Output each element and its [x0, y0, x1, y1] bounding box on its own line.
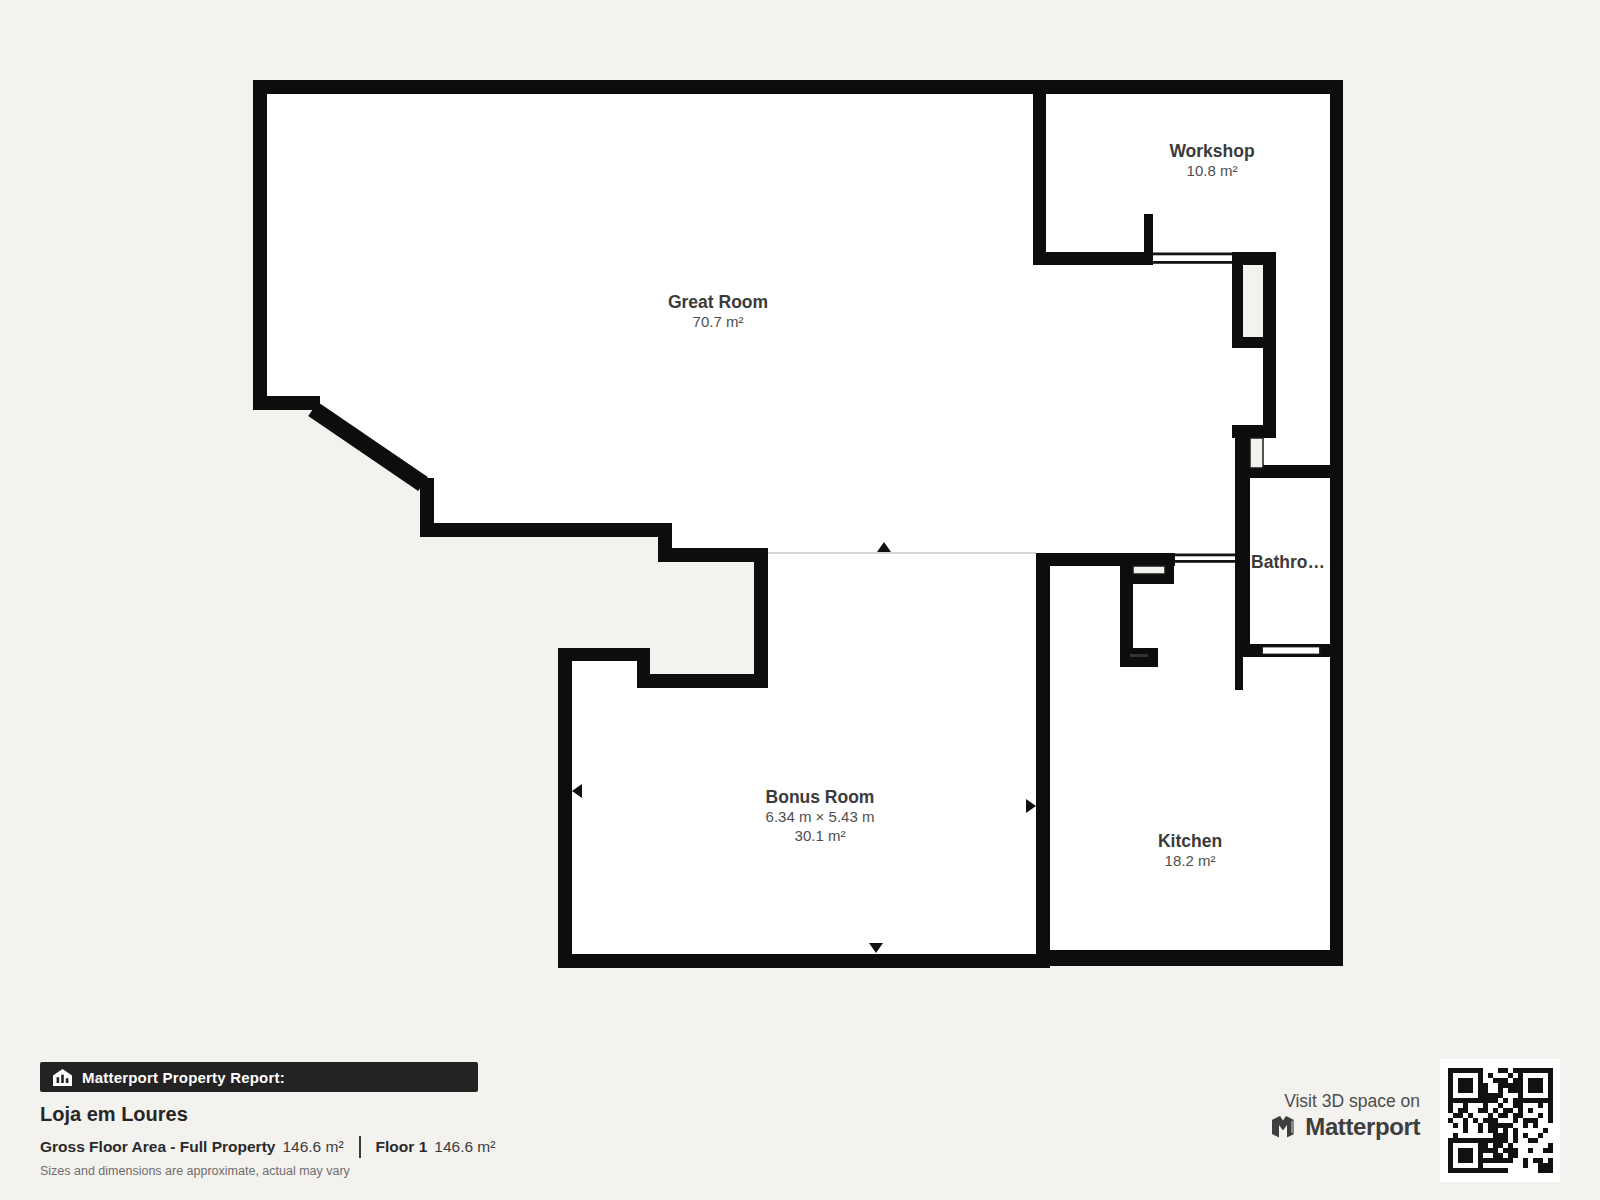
room-label-workshop: Workshop 10.8 m²	[1169, 141, 1254, 180]
floor-label: Floor 1	[376, 1138, 428, 1156]
property-report-page: Great Room 70.7 m² Workshop 10.8 m² Bath…	[0, 0, 1600, 1200]
matterport-wordmark: Matterport	[1305, 1113, 1420, 1141]
floor-value: 146.6 m²	[434, 1138, 495, 1156]
gross-floor-area-label: Gross Floor Area - Full Property	[40, 1138, 275, 1156]
report-banner: Matterport Property Report:	[40, 1062, 478, 1092]
room-area: 30.1 m²	[766, 826, 875, 845]
stats-divider	[359, 1136, 361, 1158]
room-name: Bathro…	[1251, 552, 1325, 572]
room-name: Kitchen	[1158, 831, 1222, 851]
matterport-mark-icon	[1269, 1113, 1297, 1141]
room-area: 18.2 m²	[1158, 851, 1222, 870]
room-dimensions: 6.34 m × 5.43 m	[766, 807, 875, 826]
room-area: 10.8 m²	[1169, 161, 1254, 180]
visit-3d-text: Visit 3D space on	[1284, 1091, 1420, 1112]
room-area: 70.7 m²	[668, 312, 768, 331]
room-name: Great Room	[668, 292, 768, 312]
room-label-bonus-room: Bonus Room 6.34 m × 5.43 m 30.1 m²	[766, 787, 875, 845]
room-name: Workshop	[1169, 141, 1254, 161]
room-name: Bonus Room	[766, 787, 875, 807]
room-label-great-room: Great Room 70.7 m²	[668, 292, 768, 331]
disclaimer-text: Sizes and dimensions are approximate, ac…	[40, 1164, 350, 1178]
room-label-kitchen: Kitchen 18.2 m²	[1158, 831, 1222, 870]
room-label-bathroom: Bathro…	[1251, 552, 1325, 572]
qr-code	[1440, 1059, 1560, 1182]
gross-floor-area-value: 146.6 m²	[282, 1138, 343, 1156]
matterport-logo: Matterport	[1269, 1113, 1420, 1141]
banner-label: Matterport Property Report:	[82, 1069, 285, 1086]
house-chart-icon	[53, 1069, 72, 1086]
floor-plan-svg	[0, 0, 1600, 1040]
property-name: Loja em Loures	[40, 1103, 188, 1126]
area-stats: Gross Floor Area - Full Property 146.6 m…	[40, 1136, 495, 1158]
